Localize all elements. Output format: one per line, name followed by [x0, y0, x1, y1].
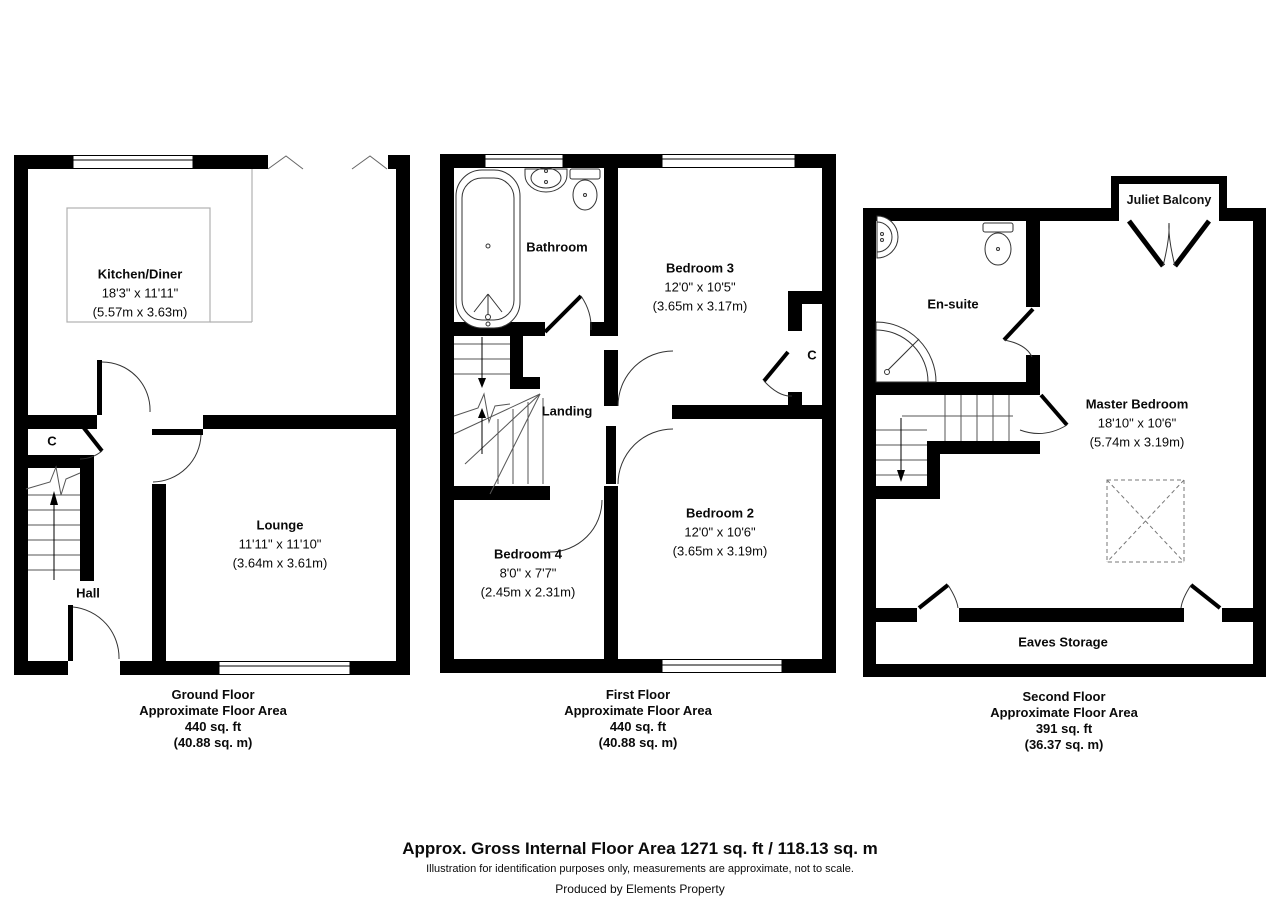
room-label-ensuite: En-suite: [927, 295, 978, 314]
room-label-juliet-balcony: Juliet Balcony: [1127, 193, 1212, 207]
room-label-bedroom2: Bedroom 2 12'0" x 10'6" (3.65m x 3.19m): [673, 504, 768, 561]
floorplan-page: Kitchen/Diner 18'3" x 11'11" (5.57m x 3.…: [0, 0, 1280, 905]
ground-floor-caption: Ground Floor Approximate Floor Area 440 …: [139, 687, 287, 751]
window: [219, 662, 350, 675]
first-floor-caption: First Floor Approximate Floor Area 440 s…: [564, 687, 712, 751]
french-doors-icon: [1129, 221, 1209, 266]
front-door-gap: [68, 660, 120, 675]
room-label-lounge: Lounge 11'11" x 11'10" (3.64m x 3.61m): [233, 516, 328, 573]
ground-floor-plan: Kitchen/Diner 18'3" x 11'11" (5.57m x 3.…: [14, 155, 410, 675]
open-edge-zigzag: [268, 156, 387, 169]
cupboard-door-icon: [764, 352, 792, 396]
gross-area-text: Approx. Gross Internal Floor Area 1271 s…: [402, 839, 878, 859]
disclaimer-text: Illustration for identification purposes…: [426, 863, 854, 875]
window: [73, 156, 193, 169]
window: [485, 155, 563, 168]
sink-icon: [877, 216, 898, 258]
walls: [14, 155, 410, 675]
master-door-icon: [1020, 395, 1067, 434]
room-label-kitchen-diner: Kitchen/Diner 18'3" x 11'11" (5.57m x 3.…: [93, 265, 188, 322]
second-floor-caption: Second Floor Approximate Floor Area 391 …: [990, 689, 1138, 753]
front-door-icon: [68, 605, 119, 661]
toilet-icon: [570, 169, 600, 210]
ground-floor-drawing: [14, 155, 410, 675]
room-label-bedroom4: Bedroom 4 8'0" x 7'7" (2.45m x 2.31m): [481, 545, 576, 602]
bathtub-icon: [456, 170, 520, 328]
window: [662, 155, 795, 168]
room-label-eaves-storage: Eaves Storage: [1018, 633, 1108, 652]
room-label-bathroom: Bathroom: [526, 238, 587, 257]
room-label-bedroom3: Bedroom 3 12'0" x 10'5" (3.65m x 3.17m): [653, 259, 748, 316]
staircase-icon: [454, 337, 543, 494]
toilet-icon: [983, 223, 1013, 265]
room-label-hall: Hall: [76, 584, 100, 603]
credit-text: Produced by Elements Property: [555, 882, 724, 896]
room-label-landing: Landing: [542, 402, 593, 421]
door-icon: [152, 429, 203, 482]
room-label-master-bedroom: Master Bedroom 18'10" x 10'6" (5.74m x 3…: [1086, 395, 1189, 452]
eaves-door-icon: [1181, 585, 1220, 608]
second-floor-plan: Juliet Balcony En-suite Master Bedroom 1…: [863, 176, 1266, 677]
window: [662, 660, 782, 673]
roof-window-dashed-icon: [1107, 480, 1184, 562]
sink-icon: [525, 168, 567, 192]
ensuite-door-icon: [1004, 309, 1033, 357]
second-floor-drawing: [863, 176, 1266, 677]
door-icon: [606, 426, 673, 484]
room-label-cupboard: C: [47, 432, 56, 451]
door-icon: [618, 351, 673, 406]
eaves-door-icon: [919, 585, 958, 608]
door-icon: [97, 360, 150, 415]
first-floor-plan: Bathroom Bedroom 3 12'0" x 10'5" (3.65m …: [440, 154, 836, 673]
bathroom-door-icon: [545, 296, 591, 332]
shower-icon: [876, 322, 936, 382]
room-label-cupboard: C: [807, 346, 816, 365]
staircase-icon: [876, 395, 1013, 482]
staircase-icon: [26, 467, 80, 580]
